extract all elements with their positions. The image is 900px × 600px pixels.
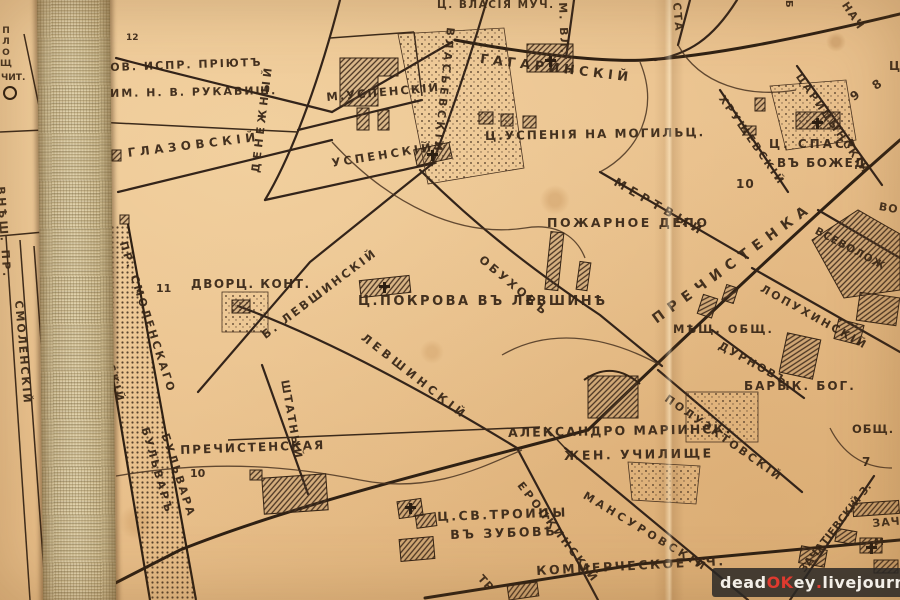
watermark-segment: dead xyxy=(720,573,767,592)
church-label-spasa-line1: Ц. СПАСА xyxy=(769,138,859,150)
church-label-vlasiya: Ц. ВЛАСІЯ МУЧ. xyxy=(437,0,555,11)
label-meshch-obshch: МѢЩ. ОБЩ. xyxy=(673,324,774,336)
fold-crease xyxy=(654,0,684,600)
label-ts-partial: Ц xyxy=(889,60,900,72)
street-label-m-vlasyevsky: М. ВЛ. xyxy=(557,2,570,55)
label-ploshch-partial: ПЛОЩ xyxy=(1,26,10,70)
block-number-12: 12 xyxy=(126,34,139,43)
block-number-10b: 10 xyxy=(190,468,205,479)
church-label-spasa-line2: ВЪ БОЖЕД. xyxy=(777,157,873,169)
label-pozharnoe-depo: ПОЖАРНОЕ ДЕПО xyxy=(547,217,709,230)
watermark: deadOKey.livejournal.com xyxy=(712,568,900,597)
label-zacha-partial: ЗАЧА xyxy=(872,515,900,529)
label-obshch-p-partial: ОБЩ. П xyxy=(852,424,900,436)
watermark-segment: ey xyxy=(794,573,816,592)
label-vo-partial: ВО xyxy=(878,201,899,215)
street-label-b-partial: Б xyxy=(783,0,793,8)
church-cross-icon xyxy=(816,118,819,129)
church-cross-icon xyxy=(870,543,873,554)
church-cross-icon xyxy=(383,282,386,293)
label-zhen-uchilishche: ЖЕН. УЧИЛИЩЕ xyxy=(564,447,714,462)
church-cross-icon xyxy=(549,56,552,67)
block-number-11: 11 xyxy=(156,283,171,294)
church-cross-icon xyxy=(431,150,434,161)
cloth-strip xyxy=(37,0,116,600)
label-priyut-line2: ИМ. Н. В. РУКАВИШ. xyxy=(110,85,277,99)
watermark-segment: OK xyxy=(767,573,794,592)
block-number-7: 7 xyxy=(862,456,870,468)
map-canvas: ГАГАРИНСКІЙЦ. ВЛАСІЯ МУЧ.ВЛАСЬЕВСКІЙМ. В… xyxy=(0,0,900,600)
watermark-segment: livejournal xyxy=(822,573,900,592)
church-cross-icon xyxy=(409,503,412,514)
label-chit: ЧИТ. xyxy=(1,74,25,83)
label-baryk-bog: БАРЫК. БОГ. xyxy=(744,380,856,392)
church-label-pokrova: Ц.ПОКРОВА ВЪ ЛЕВШИНѢ xyxy=(358,295,608,308)
label-dvorts-kont: ДВОРЦ. КОНТ. xyxy=(191,278,311,290)
watermark-segment: . xyxy=(816,573,823,592)
block-number-10a: 10 xyxy=(736,178,755,190)
circle-symbol-icon xyxy=(3,86,17,100)
